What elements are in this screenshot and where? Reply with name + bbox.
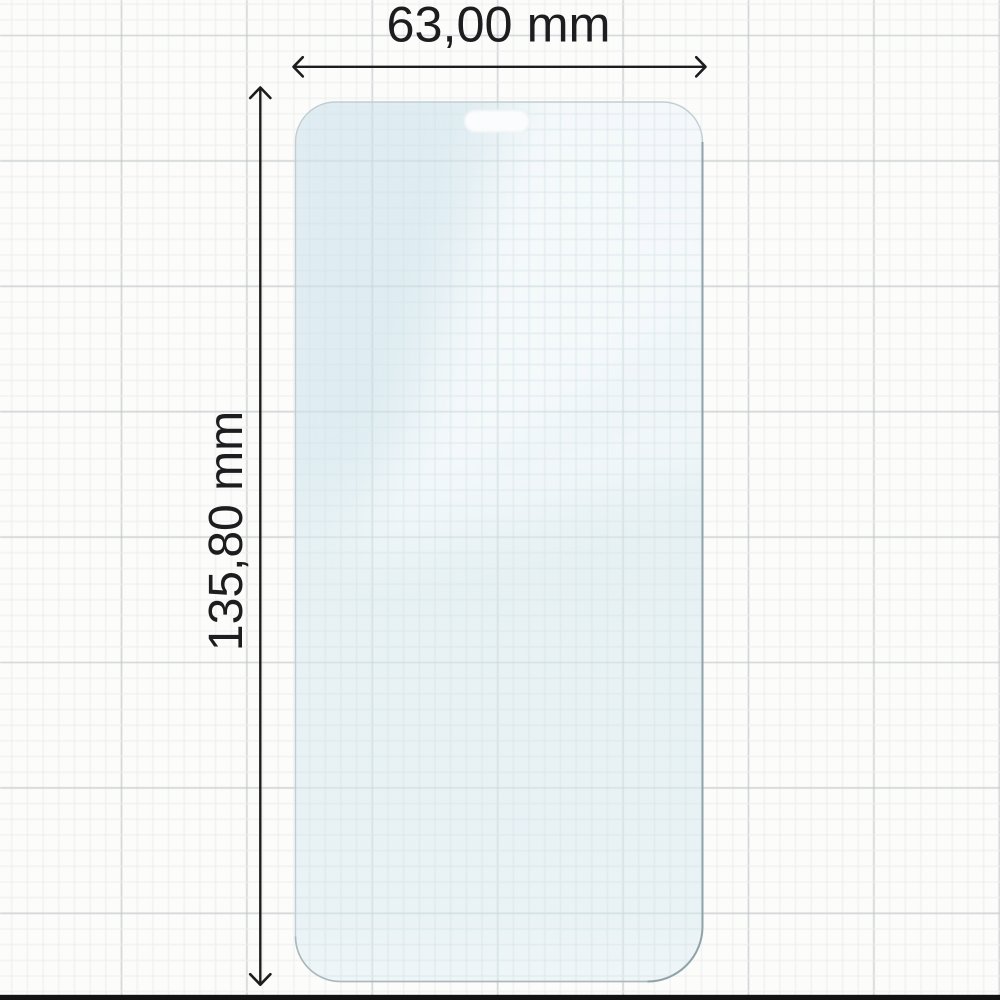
svg-text:63,00 mm: 63,00 mm [386,0,610,53]
svg-text:135,80 mm: 135,80 mm [200,411,253,651]
